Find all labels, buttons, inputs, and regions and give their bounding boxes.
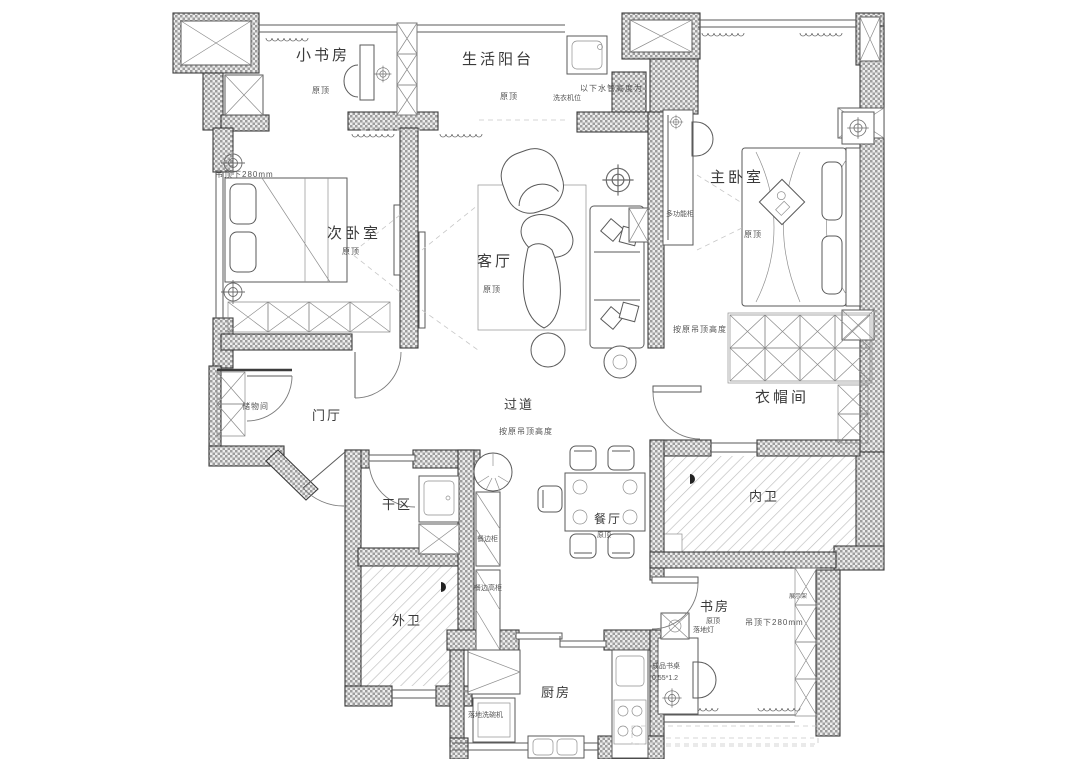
dishwasher-note: 落地洗碗机 xyxy=(468,712,503,720)
ceiling-note-second-bedroom: 原顶 xyxy=(342,248,360,257)
room-label-study: 书房 xyxy=(700,600,730,614)
room-label-foyer: 门厅 xyxy=(312,409,342,423)
tv-living xyxy=(419,232,425,328)
hallway-ceiling-note: 按原吊顶高度 xyxy=(499,428,553,437)
dry-area-vanity xyxy=(419,476,459,554)
room-label-cloakroom: 衣帽间 xyxy=(755,390,809,407)
room-label-living: 客厅 xyxy=(477,254,513,271)
floor-plan: 小书房 原顶 生活阳台 原顶 以下水管高度为 洗衣机位 次卧室 原顶 吊顶下28… xyxy=(0,0,1080,759)
ceiling-note-living: 原顶 xyxy=(483,286,501,295)
sideboard-tall-note: 餐边高柜 xyxy=(474,585,502,593)
washer-note: 洗衣机位 xyxy=(553,95,581,103)
room-label-inner-bath: 内卫 xyxy=(749,490,779,504)
ceiling-note-dining: 原顶 xyxy=(597,532,611,540)
desk-note: 成品书桌 xyxy=(652,663,680,671)
room-label-small-study: 小书房 xyxy=(296,48,350,65)
windows xyxy=(216,20,856,750)
multi-cabinet-note: 多功能柜 xyxy=(666,211,694,219)
columns xyxy=(181,17,884,138)
room-label-dining: 餐厅 xyxy=(594,513,622,526)
washing-machine xyxy=(567,36,607,74)
plant xyxy=(474,453,512,491)
ceiling-note-small-study: 原顶 xyxy=(312,87,330,96)
drop-note-study: 吊顶下280mm xyxy=(745,619,804,628)
master-dresser xyxy=(663,110,713,245)
second-bedroom-wardrobe xyxy=(228,302,390,332)
display-shelf-note: 展示架 xyxy=(789,594,807,601)
sofa xyxy=(590,164,648,378)
ceiling-note-study: 原顶 xyxy=(706,618,720,626)
sideboard-note: 餐边柜 xyxy=(477,536,498,544)
room-label-outer-bath: 外卫 xyxy=(392,614,422,628)
ceiling-note-master-bedroom: 原顶 xyxy=(744,231,762,240)
master-bed xyxy=(697,112,874,340)
room-label-balcony: 生活阳台 xyxy=(462,52,534,69)
room-label-second-bedroom: 次卧室 xyxy=(327,226,381,243)
dining-set xyxy=(538,446,645,558)
ceiling-note-balcony: 原顶 xyxy=(500,93,518,102)
duct-strip xyxy=(397,23,417,115)
room-label-master-bedroom: 主卧室 xyxy=(710,170,764,187)
walls xyxy=(173,13,884,759)
study-desk-small xyxy=(344,45,391,100)
inner-bath-floor xyxy=(662,456,856,564)
cloakroom-ceiling-note: 按原吊顶高度 xyxy=(673,326,727,335)
room-label-storage: 储物间 xyxy=(242,403,269,412)
desk-size-note: 0.55*1.2 xyxy=(652,675,678,683)
room-label-dry-area: 干区 xyxy=(382,498,412,512)
sideboard-cabinets xyxy=(476,492,500,650)
room-label-hallway: 过道 xyxy=(504,398,534,412)
floor-lamp-note: 落地灯 xyxy=(693,627,714,635)
room-label-kitchen: 厨房 xyxy=(541,686,571,700)
floorplan-drawing xyxy=(0,0,1080,759)
drop-note-second-bedroom: 吊顶下280mm xyxy=(215,171,274,180)
pipe-height-note: 以下水管高度为 xyxy=(580,85,643,94)
